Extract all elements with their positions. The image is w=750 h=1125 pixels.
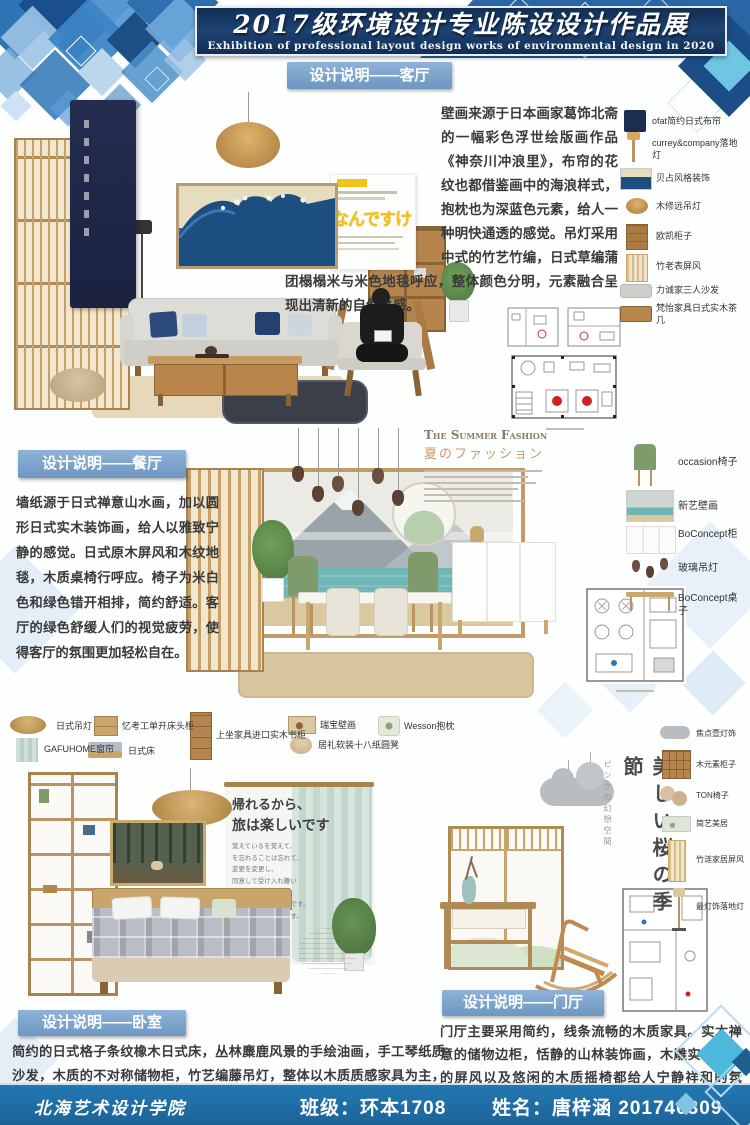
small-text-line [424,488,518,490]
table-leg-thumbnail [630,597,632,611]
footer-bar: 北海艺术设计学院 班级：环本1708 姓名：唐梓涵 201740309 [0,1083,750,1125]
small-text-line [424,476,528,478]
screen-thumbnail [668,840,686,882]
item-label: 力诚家三人沙发 [656,285,746,297]
glass-pendant-bulb [292,466,304,482]
pendant-cord [318,428,319,486]
sofa-pillow-light [287,313,312,336]
curtain-calligraphy-mark [84,116,89,236]
item-label: 欧凯柜子 [656,231,746,243]
floor-lamp-base [672,928,686,931]
cloud-lamp-bump [576,762,604,790]
quote-line-1: 帰れるから、 [232,794,362,813]
item-label: 最灯饰落地灯 [696,902,748,912]
summer-fashion-block: The Summer Fashion 夏のファッション [424,428,574,502]
sideboard-leg [458,620,462,634]
cabinet-thumbnail [626,224,648,250]
console-leg [444,909,448,969]
table-leg [438,602,442,650]
green-chair-thumbnail [634,444,656,470]
floor-lamp-thumbnail-shade [673,888,685,897]
quote-small-line: 変更を変更し、 [232,864,362,876]
floor-lamp-illustration [141,232,143,304]
item-label: occasion椅子 [678,456,748,469]
pillow-thumbnail [378,716,400,736]
table-leg [306,602,310,650]
poster-subtitle: Exhibition of professional layout design… [197,40,725,52]
green-chair-illustration [408,552,438,592]
tea-tray [195,354,229,358]
ton-chair-thumbnail [672,791,687,806]
item-label: 玻璃吊灯 [678,562,748,575]
glass-pendant-thumbnail [660,558,668,570]
glass-pendant-thumbnail [646,566,654,578]
art-thumbnail [662,816,691,832]
quote-small-line: 覚えているを覚えて、 [232,841,362,853]
pendant-lamp-thumbnail [626,198,648,214]
watermark-diamond [680,650,745,715]
console-shelf [448,940,528,944]
sofa-leg [135,366,141,376]
pendant-cord [398,428,399,490]
summer-fashion-subtitle: 夏のファッション [424,443,574,462]
item-label: 新艺壁画 [678,500,748,513]
wall-art-thumbnail [626,490,674,522]
coffee-table-leg [158,394,163,406]
elk-figure [151,861,163,870]
glass-pendant-bulb [352,500,364,516]
rattan-pendant-lamp-illustration [216,122,280,168]
plant-pot [262,578,284,602]
bookcase-thumbnail [190,712,212,760]
chair-leg-thumbnail [650,470,652,486]
small-text-line [424,494,512,496]
poster-title: 2017级环境设计专业陈设设计作品展 [197,10,725,40]
class-info: 班级：环本1708 [300,1093,446,1120]
pendant-cord [378,428,379,468]
pendant-cord [358,428,359,500]
bamboo-screen-thumbnail [626,254,648,282]
coffee-table-leg [286,394,291,406]
section-header-hall: 设计说明——门厅 [442,990,604,1016]
poster-headline: なんですけ [332,208,411,232]
cloud-lamp-thumbnail [660,726,690,739]
book-illustration [374,330,392,342]
quote-small-line: を忘れることは忘れて、 [232,853,362,865]
wave-painting [176,183,338,269]
pouf-illustration [50,368,106,402]
floor-lamp-thumbnail [678,892,680,928]
sofa-pillow-light [182,314,207,337]
section-header-dining: 设计说明——餐厅 [18,450,186,478]
item-label: GAFUHOME窗帘 [44,744,134,756]
white-cabinet-thumbnail [626,526,676,554]
pendant-lamp-thumbnail [10,716,46,734]
elk-painting-illustration [110,820,206,886]
item-label: 上坐家具进口实木书柜 [216,730,326,742]
shelf-item [43,885,57,893]
vase-illustration [462,876,476,904]
section-header-living: 设计说明——客厅 [287,62,452,89]
poster-text-line [337,197,385,200]
item-label: 木元素柜子 [696,760,748,770]
glass-pendant-thumbnail [632,560,640,572]
tree-silhouettes [113,823,203,863]
paper-stool-illustration [298,928,358,974]
item-label: 忆考工单开床头柜 [122,721,218,733]
small-text-line [424,482,536,484]
sofa-pillow-navy [255,312,280,335]
item-label: 瑞宝壁画 [320,720,380,732]
coffee-table-body [154,364,298,396]
item-label: Wesson抱枕 [404,721,474,733]
cloud-lamp-bump [552,768,574,790]
poster-tag-bar [337,179,367,187]
sideboard-illustration [452,542,556,622]
bed-leg [274,982,282,994]
sofa-thumbnail [620,284,652,298]
item-label: BoConcept桌子 [678,592,742,618]
screen-lattice-strip [451,829,561,851]
console-table-top [440,902,536,909]
shelf-item [83,825,95,835]
chair-leg-thumbnail [638,470,640,486]
poster-canvas: 2017级环境设计专业陈设设计作品展 Exhibition of profess… [0,0,750,1125]
quote-small-line: 同意して受け入れ難い [232,876,362,888]
item-label: 木修远吊灯 [656,201,746,213]
poster-text-line [337,236,403,238]
floor-plan-dining [584,586,686,684]
bed-throw-blanket [92,958,290,982]
item-label: 梵怡家具日式实木茶几 [656,303,744,326]
accent-pillow [212,899,236,917]
sofa-pillow-navy [149,311,178,338]
glass-pendant-bulb [392,490,404,506]
bed-pillow [111,896,152,920]
item-label: 居礼软装十八纸圆凳 [318,740,414,752]
glass-pendant-bulb [332,476,344,492]
item-label: TON椅子 [696,791,748,801]
item-label: ofat简约日式布帘 [652,116,748,128]
beige-chair-illustration [374,588,408,636]
wood-cabinet-thumbnail [662,750,691,779]
pendant-cord [248,92,249,124]
poster-text-line [337,248,399,250]
pendant-cord [298,428,299,466]
great-wave-art [179,186,335,266]
tea-table-thumbnail [620,306,652,322]
chair-leg [292,596,295,636]
item-label: 日式床 [128,746,188,758]
beige-chair-illustration [326,588,360,636]
plan-caption-line [616,690,654,692]
green-chair-illustration [288,556,318,596]
glass-pendant-bulb [372,468,384,484]
console-drawer [452,909,526,929]
curtain-thumbnail [16,738,38,762]
item-label: 焦点壹灯饰 [696,729,748,739]
sideboard-leg [544,620,548,634]
dining-rug-illustration [238,652,534,698]
bed-pillow [160,896,201,919]
wave-art-thumbnail [620,168,652,190]
small-text-line [424,500,524,502]
vertical-japanese-subtitle: ピンクの幻想空間 [602,760,613,880]
shelf-item [39,789,49,803]
summer-fashion-title: The Summer Fashion [424,428,574,442]
poster-text-line [337,242,395,244]
person-legs [356,344,408,362]
section-header-bedroom: 设计说明——卧室 [18,1010,186,1036]
item-label: 竹老表屏风 [656,261,746,273]
bed-leg [100,982,108,994]
item-label: BoConcept柜 [678,528,742,541]
armchair-leg [412,370,422,397]
item-label: 日式吊灯 [56,721,116,733]
floor-plan-living-large [508,352,620,422]
pendant-cord [190,768,191,792]
quote-line-2: 旅は楽しいです [232,815,362,835]
navy-curtain-illustration [70,100,136,308]
item-label: 简艺美居 [696,819,748,829]
curtain-thumbnail [624,110,646,132]
poster-text-line [337,191,397,194]
floor-lamp-thumbnail-shade [627,132,640,140]
table-thumbnail [626,592,674,597]
small-text-line [424,470,542,472]
school-name: 北海艺术设计学院 [34,1094,186,1119]
item-label: currey&company落地灯 [652,138,742,161]
watermark-diamond [537,682,594,739]
deer-figurine [470,526,484,542]
table-leg-thumbnail [668,597,670,611]
banner: 2017级环境设计专业陈设设计作品展 Exhibition of profess… [195,6,727,56]
item-label: 竹涟家居屏风 [696,855,748,865]
item-label: 贝占风格装饰 [656,173,746,185]
dining-description: 墙纸源于日式禅意山水画，加以圆形日式实木装饰画，给人以雅致宁静的感觉。日式原木屏… [16,490,219,665]
pendant-cord [338,428,339,476]
glass-pendant-bulb [312,486,324,502]
